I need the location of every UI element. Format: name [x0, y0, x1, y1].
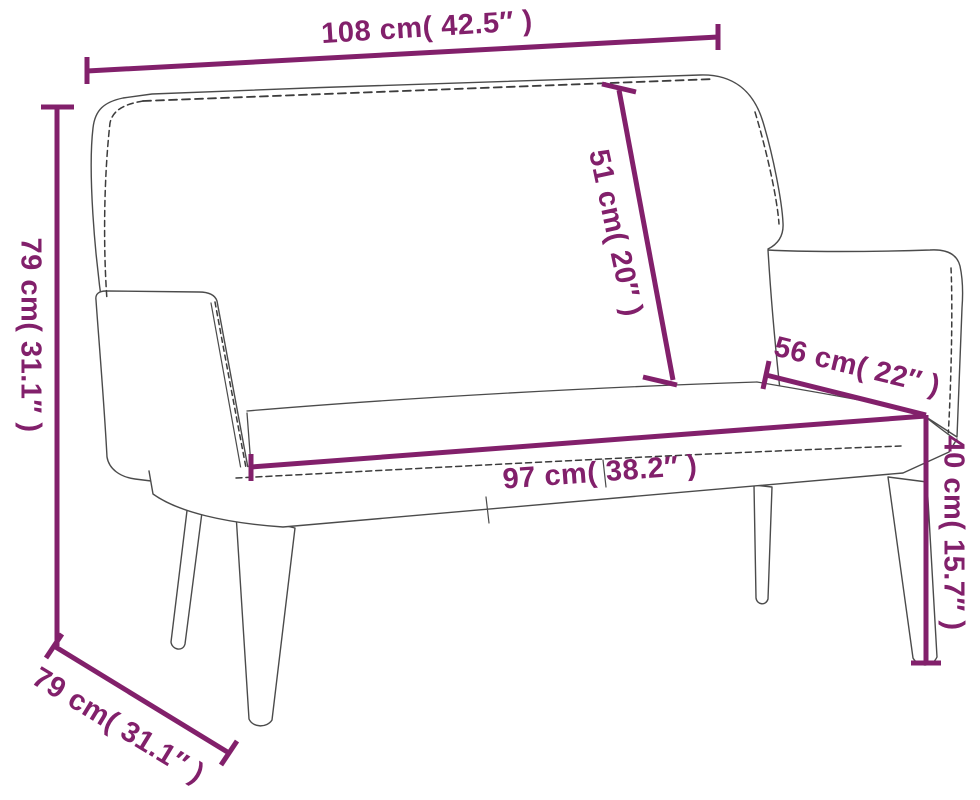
- tick: [46, 634, 62, 658]
- seat-height-label: 40 cm( 15.7″ ): [937, 436, 970, 631]
- bench-illustration: [0, 0, 980, 800]
- front-right-leg: [888, 477, 937, 665]
- overall-height-label: 79 cm( 31.1″ ): [14, 238, 47, 433]
- tick: [221, 741, 237, 765]
- rear-right-leg: [754, 485, 772, 604]
- front-left-leg: [236, 514, 295, 726]
- bench-dimension-diagram: 108 cm( 42.5″ ) 79 cm( 31.1″ ) 51 cm( 20…: [0, 0, 980, 800]
